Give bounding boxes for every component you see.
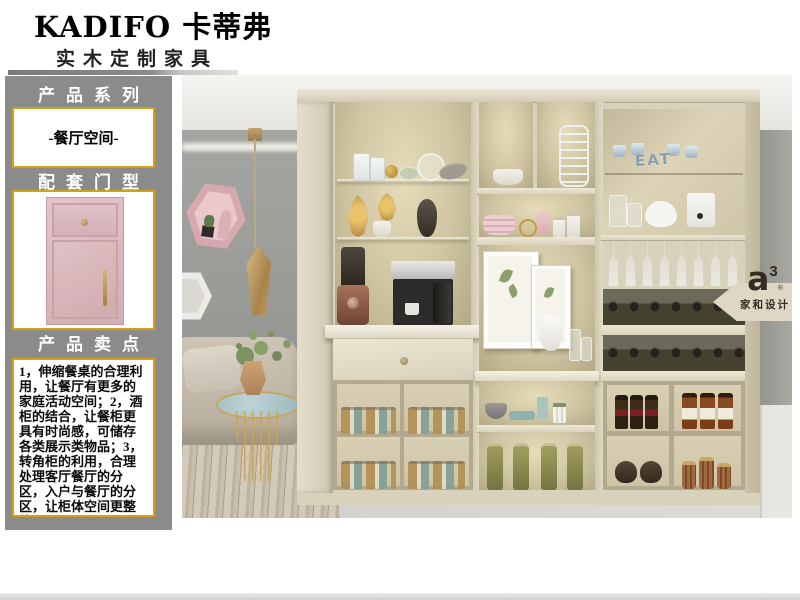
- gold-ornament: [385, 165, 398, 178]
- blender-jar: [341, 247, 365, 287]
- white-pitcher: [539, 315, 563, 351]
- brand-logo: KADIFO 卡蒂弗: [34, 4, 272, 46]
- blue-cup: [613, 145, 626, 157]
- dark-jar: [640, 461, 662, 483]
- glass-jars: [408, 461, 465, 489]
- kitchen-appliance: [687, 193, 715, 227]
- watermark-superscript: 3: [769, 263, 777, 280]
- white-dish: [493, 169, 523, 185]
- white-wire-wine-rack: [559, 125, 589, 187]
- glass-jars: [341, 407, 396, 434]
- glass-jars: [341, 461, 396, 489]
- door-handle: [103, 270, 107, 306]
- white-jar: [553, 217, 565, 238]
- pendant-cord: [254, 139, 256, 247]
- wine-glass: [624, 240, 637, 286]
- wine-glass: [641, 240, 654, 286]
- whisky-bottle: [615, 395, 628, 429]
- white-bowl: [373, 221, 391, 237]
- points-header: 产品卖点: [5, 330, 172, 355]
- wine-bottle-row: [603, 335, 745, 371]
- white-jar: [567, 213, 580, 238]
- dark-vase: [417, 199, 437, 237]
- door-type-box: [12, 190, 155, 330]
- glass-shelf: [337, 237, 469, 240]
- door-knob: [81, 219, 88, 226]
- selling-points-box: 1，伸缩餐桌的合理利用，让餐厅有更多的家庭活动空间；2，酒柜的结合，让餐柜更具有…: [12, 358, 155, 517]
- watermark-studio-name: 家和设计: [738, 297, 792, 312]
- green-glass-jar: [541, 443, 557, 490]
- hexagon-shelf-interior: [182, 278, 205, 314]
- wire-shelf: [605, 173, 743, 175]
- glass-bottle: [581, 337, 592, 361]
- appliance-dot: [697, 213, 703, 219]
- utensil-cup: [537, 397, 548, 419]
- series-value-box: -餐厅空间-: [12, 107, 155, 168]
- counter-ledge: [325, 325, 483, 339]
- wine-glass: [675, 240, 688, 286]
- sidebar: 产品系列 -餐厅空间- 配套门型 产品卖点 1，伸缩餐桌的合理利用，让餐厅有更多…: [5, 76, 172, 530]
- cabinet-crown: [297, 89, 760, 103]
- cabinet-left-panel: [297, 102, 333, 493]
- pink-vase: [537, 211, 550, 235]
- cork-lid-jar: [699, 457, 714, 489]
- ceramic-tin: [353, 153, 370, 181]
- drawer-knob: [400, 357, 408, 365]
- pink-bowl-stack: [483, 215, 515, 235]
- green-glass-jar: [487, 443, 503, 490]
- glass-bowl: [399, 167, 419, 180]
- glass-jars: [408, 407, 465, 434]
- whisky-bottle: [700, 393, 715, 429]
- whisky-bottle: [682, 393, 697, 429]
- wine-glass: [709, 240, 722, 286]
- door-lower-panel: [52, 240, 118, 319]
- gold-wire-sphere: [519, 219, 537, 237]
- watermark-letter: a: [747, 259, 769, 298]
- cabinet-door-thumbnail: [46, 197, 124, 325]
- blender-dial: [347, 297, 359, 309]
- page-bottom-strip: [0, 593, 800, 600]
- wine-glass: [692, 240, 705, 286]
- wainscot-panel: [760, 405, 792, 518]
- stemware-rack-rail: [601, 235, 745, 241]
- white-teapot: [645, 201, 677, 227]
- display-cabinet: EAT: [297, 89, 760, 505]
- whisky-bottle: [645, 395, 658, 429]
- ceramic-tin: [370, 157, 385, 181]
- dark-jar: [615, 461, 637, 483]
- utensil-pouch: [509, 411, 535, 420]
- wine-glass: [607, 240, 620, 286]
- whisky-bottle: [718, 393, 733, 429]
- throw-pillow: [182, 344, 242, 394]
- coffee-machine-tank: [433, 283, 451, 323]
- dining-room-photo: EAT: [182, 75, 792, 518]
- cabinet-divider: [595, 102, 603, 490]
- cork-lid-jar: [682, 461, 696, 489]
- succulent-pot: [553, 403, 566, 423]
- glass-jar: [627, 203, 642, 227]
- door-drawer-panel: [52, 203, 118, 237]
- blue-cup: [685, 146, 698, 158]
- cork-lid-jar: [717, 463, 731, 489]
- eat-letters-decor: EAT: [634, 150, 672, 171]
- series-header: 产品系列: [5, 81, 172, 106]
- glass-bottle: [569, 329, 581, 361]
- espresso-cup: [405, 303, 419, 315]
- green-glass-jar: [567, 443, 583, 490]
- glass-jar: [609, 195, 627, 227]
- whisky-bottle: [630, 395, 643, 429]
- green-glass-jar: [513, 443, 529, 490]
- hexagon-shelf-interior: [191, 188, 242, 244]
- watermark-registered-mark: ®: [778, 285, 783, 292]
- botanical-print: [488, 256, 532, 342]
- watermark: a3® 家和设计: [738, 263, 792, 312]
- wine-glass: [658, 240, 671, 286]
- series-value: -餐厅空间-: [49, 127, 119, 148]
- coffee-machine-panel: [391, 261, 455, 279]
- brand-tagline: 实木定制家具: [56, 44, 218, 71]
